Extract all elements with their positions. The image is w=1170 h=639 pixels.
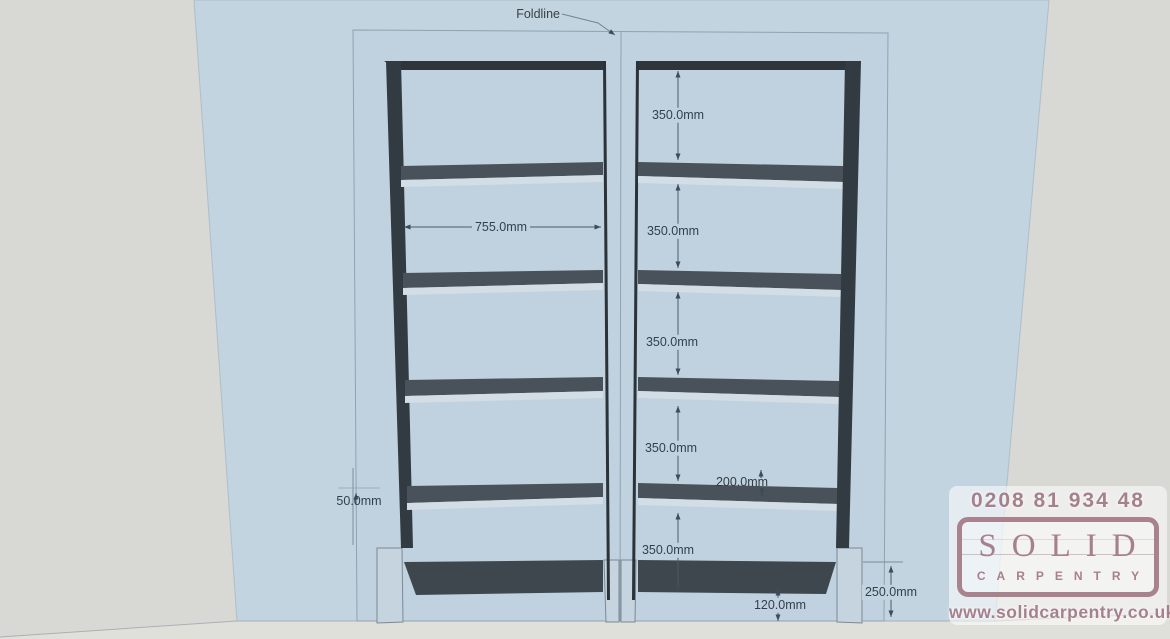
brand-watermark: 0208 81 934 48 SOLID CARPENTRY www.solid… bbox=[949, 486, 1167, 625]
dimension-label-755: 755.0mm bbox=[472, 220, 530, 235]
shelving-design-viewport: Foldline 350.0mm 350.0mm 350.0mm 350.0mm… bbox=[0, 0, 1170, 639]
dimension-label-120: 120.0mm bbox=[751, 598, 809, 613]
dimension-label-50: 50.0mm bbox=[336, 495, 381, 508]
dimension-label-350: 350.0mm bbox=[644, 224, 702, 239]
dimension-label-350: 350.0mm bbox=[649, 108, 707, 123]
dimension-label-350: 350.0mm bbox=[639, 543, 697, 558]
foldline-label: Foldline bbox=[516, 7, 560, 21]
brand-logo-word: SOLID bbox=[962, 529, 1154, 564]
brand-phone-number: 0208 81 934 48 bbox=[949, 489, 1167, 513]
dimension-label-350: 350.0mm bbox=[643, 335, 701, 350]
dimension-label-250: 250.0mm bbox=[862, 585, 920, 600]
brand-logo-box: SOLID CARPENTRY bbox=[957, 517, 1159, 597]
dimension-label-350: 350.0mm bbox=[642, 441, 700, 456]
brand-website: www.solidcarpentry.co.uk bbox=[949, 602, 1167, 623]
brand-logo-subword: CARPENTRY bbox=[962, 569, 1154, 583]
dimension-label-200: 200.0mm bbox=[716, 476, 768, 489]
